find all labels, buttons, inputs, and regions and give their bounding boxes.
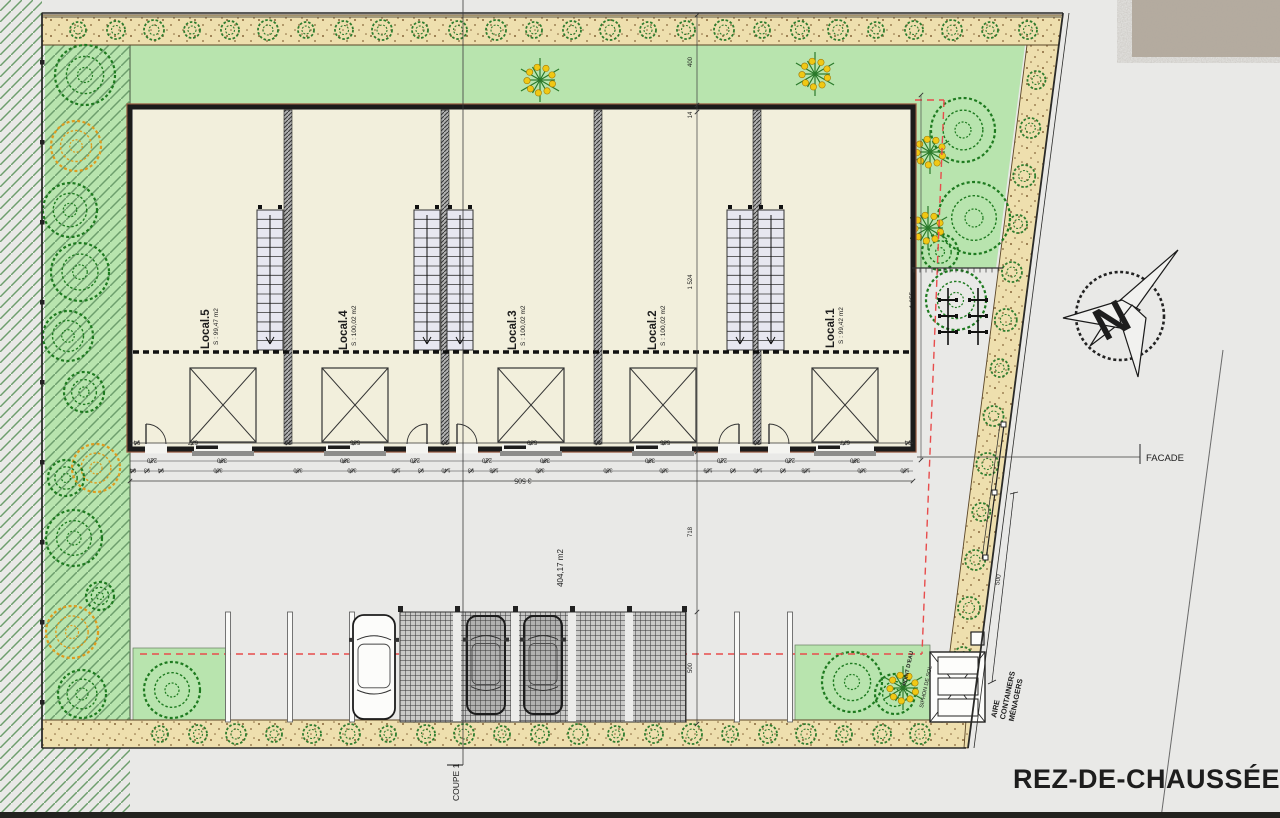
decor-shape [394, 638, 399, 642]
decor-shape [968, 330, 971, 334]
svg-text:Local.1: Local.1 [825, 308, 837, 348]
decor-shape [524, 616, 562, 714]
decor-shape [924, 136, 930, 142]
stall-marker [455, 606, 460, 612]
decor-shape [824, 75, 830, 81]
decor-shape [718, 444, 740, 454]
decor-shape [818, 59, 824, 65]
decor-shape [504, 638, 509, 642]
decor-shape [748, 205, 752, 209]
decor-shape [768, 444, 790, 454]
stall-divider [568, 613, 576, 722]
decor-shape [543, 65, 549, 71]
decor-shape [415, 205, 419, 209]
unit-label-local-3: Local.3 S : 100,02 m2 [507, 305, 527, 350]
decor-shape [922, 212, 928, 218]
stall-divider [735, 612, 740, 722]
boundary-post [40, 700, 45, 705]
decor-shape [955, 298, 958, 302]
decor-shape [968, 298, 971, 302]
decor-shape [925, 162, 931, 168]
dimension-label: 400 [688, 56, 694, 67]
stair-icon [727, 205, 753, 350]
decor-shape: 718 [688, 526, 694, 537]
boundary-post [40, 460, 45, 465]
decor-shape [819, 82, 825, 88]
decor-shape [955, 314, 958, 318]
decor-shape [549, 72, 555, 78]
door-leaf [818, 446, 840, 450]
svg-text:Local.3: Local.3 [507, 310, 519, 350]
boundary-post [40, 540, 45, 545]
stall-marker [398, 606, 403, 612]
decor-shape [468, 205, 472, 209]
dimension-label: 1 524 [688, 274, 694, 290]
threshold [192, 451, 254, 456]
decor-shape [938, 298, 941, 302]
decor-shape [985, 330, 988, 334]
decor-shape [526, 69, 532, 75]
threshold [814, 451, 876, 456]
decor-shape [985, 314, 988, 318]
decor-shape [544, 88, 550, 94]
decor-shape [802, 80, 808, 86]
svg-text:S : 100,02 m2: S : 100,02 m2 [660, 305, 667, 346]
decor-shape [520, 638, 525, 642]
decor-shape [258, 205, 262, 209]
unit-label-local-1: Local.1 S : 99,42 m2 [825, 307, 845, 348]
sheet-edge-bar [0, 812, 1280, 818]
decor-shape [928, 150, 932, 154]
stair-icon [447, 205, 473, 350]
stall-marker [682, 606, 687, 612]
party-wall [594, 110, 602, 444]
right-side-dimension: 1 655 [909, 291, 916, 308]
decor-shape [463, 638, 468, 642]
decor-shape [907, 696, 913, 702]
dimension-label: 14 [688, 111, 694, 118]
decor-shape [898, 698, 904, 704]
decor-shape [448, 205, 452, 209]
party-wall [284, 110, 292, 444]
hatched-area [0, 0, 130, 812]
decor-shape [897, 672, 903, 678]
decor-shape [145, 444, 167, 454]
decor-shape [917, 158, 923, 164]
stall-marker [627, 606, 632, 612]
decor-shape [456, 444, 478, 454]
decor-shape [524, 77, 530, 83]
decor-shape [278, 205, 282, 209]
decor-shape [926, 226, 930, 230]
svg-text:Local.4: Local.4 [338, 310, 350, 350]
section-label: COUPE 1 [451, 763, 461, 801]
facade-label: FACADE [1146, 453, 1184, 464]
threshold [324, 451, 386, 456]
decor-shape [938, 314, 941, 318]
stall-marker [570, 606, 575, 612]
building [127, 104, 916, 456]
decor-shape [968, 314, 971, 318]
decor-shape [932, 236, 938, 242]
decor-shape [916, 141, 922, 147]
decor-shape [887, 685, 893, 691]
stair-icon [414, 205, 440, 350]
svg-text:Local.2: Local.2 [647, 310, 659, 350]
stall-divider [788, 612, 793, 722]
door-leaf [196, 446, 218, 450]
decor-shape [527, 86, 533, 92]
stair-icon [758, 205, 784, 350]
decor-shape: 500 [688, 662, 694, 673]
decor-shape [534, 64, 540, 70]
decor-shape [934, 160, 940, 166]
decor-shape: 400 [688, 56, 694, 67]
dimension-label: 500 [688, 662, 694, 673]
decor-shape [561, 638, 566, 642]
decor-shape [890, 694, 896, 700]
door-leaf [504, 446, 526, 450]
site-plan-drawing: 2103903902102103903902102103908493943003… [0, 0, 1280, 818]
decor-shape [779, 205, 783, 209]
photo-texture [1132, 0, 1280, 57]
courtyard-area-label: 404,17 m2 [556, 549, 565, 587]
stall-divider [226, 612, 231, 722]
decor-shape [349, 638, 354, 642]
decor-shape [809, 58, 815, 64]
decor-shape [467, 616, 505, 714]
boundary-post [40, 380, 45, 385]
car-icon [349, 615, 399, 719]
overall-width-dimension: 3 505 [514, 477, 532, 484]
floor-plan-canvas: 2103903902102103903902102103908493943003… [0, 0, 1280, 818]
threshold [500, 451, 562, 456]
stair-icon [257, 205, 283, 350]
svg-text:Local.5: Local.5 [200, 309, 212, 349]
decor-shape [985, 298, 988, 302]
decor-shape [912, 689, 918, 695]
decor-shape [889, 677, 895, 683]
stall-marker [513, 606, 518, 612]
unit-label-local-2: Local.2 S : 100,02 m2 [647, 305, 667, 350]
decor-shape [353, 615, 395, 719]
decor-shape [549, 81, 555, 87]
decor-shape [538, 78, 542, 82]
threshold [632, 451, 694, 456]
boundary-post [40, 60, 45, 65]
decor-shape [813, 72, 817, 76]
decor-shape [801, 63, 807, 69]
door-leaf [636, 446, 658, 450]
stall-divider [625, 613, 633, 722]
svg-text:S : 99,42 m2: S : 99,42 m2 [838, 307, 845, 344]
decor-shape [923, 238, 929, 244]
decor-shape [535, 90, 541, 96]
decor-shape [435, 205, 439, 209]
decor-shape [728, 205, 732, 209]
decor-shape [799, 71, 805, 77]
decor-shape [912, 680, 918, 686]
decor-shape [938, 330, 941, 334]
svg-text:S : 99,47 m2: S : 99,47 m2 [213, 308, 220, 345]
decor-shape [810, 84, 816, 90]
page-title: REZ-DE-CHAUSSÉE [1013, 763, 1280, 794]
stall-divider [453, 613, 461, 722]
boundary-post [40, 220, 45, 225]
unit-label-local-5: Local.5 S : 99,47 m2 [200, 308, 220, 349]
svg-text:S : 100,02 m2: S : 100,02 m2 [520, 305, 527, 346]
unit-label-local-4: Local.4 S : 100,02 m2 [338, 305, 358, 350]
decor-shape: 14 [688, 111, 694, 118]
car-icon [463, 616, 509, 714]
decor-shape [759, 205, 763, 209]
door-leaf [328, 446, 350, 450]
boundary-post [40, 620, 45, 625]
decor-shape [955, 330, 958, 334]
stall-divider [288, 612, 293, 722]
decor-shape [406, 444, 428, 454]
dimension-label: 718 [688, 526, 694, 537]
car-icon [520, 616, 566, 714]
decor-shape [937, 220, 943, 226]
boundary-post [40, 140, 45, 145]
decor-shape [931, 213, 937, 219]
svg-text:S : 100,02 m2: S : 100,02 m2 [351, 305, 358, 346]
decor-shape [933, 137, 939, 143]
stall-divider [511, 613, 519, 722]
decor-shape [824, 66, 830, 72]
boundary-post [40, 300, 45, 305]
decor-shape: 1 524 [688, 274, 694, 290]
